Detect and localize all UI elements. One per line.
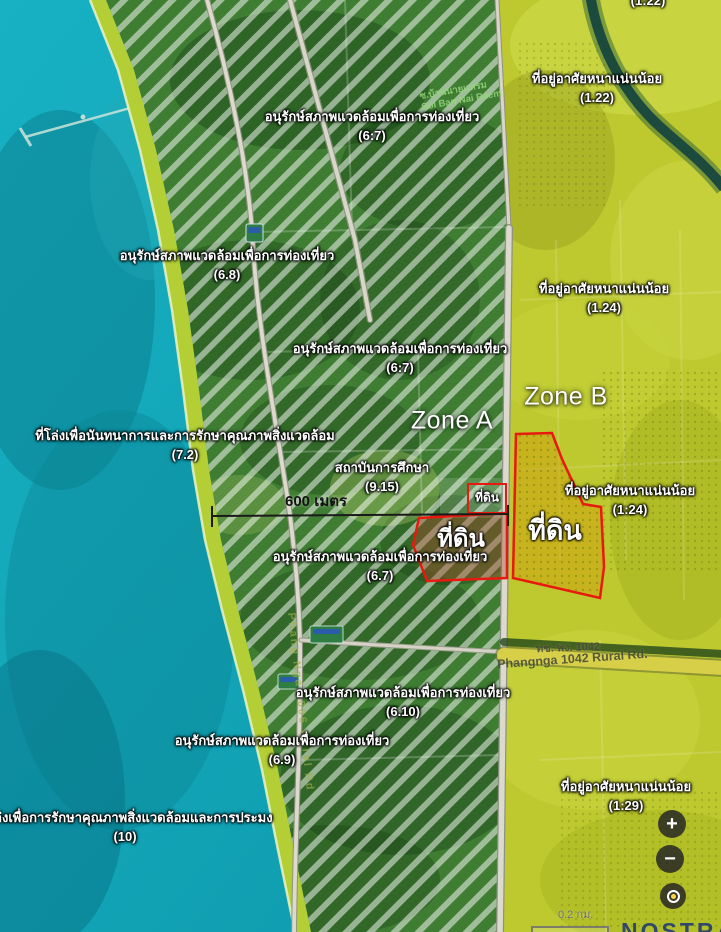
scale-text: 0.2 กม.	[558, 905, 593, 923]
zone-b-label: Zone B	[524, 383, 608, 412]
zoning-label: อนุรักษ์สภาพแวดล้อมเพื่อการท่องเที่ยว (6…	[293, 341, 508, 375]
plot-label-small: ที่ดิน	[475, 489, 499, 508]
zoom-in-button[interactable]: +	[658, 810, 686, 838]
zoning-label: ที่อยู่อาศัยหนาแน่นน้อย (1.24)	[539, 281, 669, 315]
zoning-label: ที่อยู่อาศัยหนาแน่นน้อย (1:24)	[565, 483, 695, 517]
locate-button[interactable]	[660, 883, 686, 909]
zoning-label: ที่อยู่อาศัยหนาแน่นน้อย (1.22)	[532, 71, 662, 105]
measurement-label: 600 เมตร	[285, 489, 347, 513]
zoning-label: อนุรักษ์สภาพแวดล้อมเพื่อการท่องเที่ยว (6…	[175, 733, 390, 767]
zoning-label: (1:22)	[631, 0, 666, 8]
zoning-label: ที่โล่งเพื่อนันทนาการและการรักษาคุณภาพสิ…	[35, 428, 335, 462]
zoning-label: ที่อยู่อาศัยหนาแน่นน้อย (1:29)	[561, 779, 691, 813]
zoning-label: อนุรักษ์สภาพแวดล้อมเพื่อการท่องเที่ยว (6…	[120, 248, 335, 282]
zoning-label: สถาบันการศึกษา (9.15)	[335, 460, 429, 494]
road-shield-icon	[310, 626, 343, 643]
brand-logo: NOSTRA	[621, 918, 721, 932]
zoning-label: ล่งเพื่อการรักษาคุณภาพสิ่งแวดล้อมและการป…	[0, 810, 256, 844]
zoning-label: อนุรักษ์สภาพแวดล้อมเพื่อการท่องเที่ยว (6…	[296, 685, 511, 719]
zoom-out-button[interactable]: −	[656, 845, 684, 873]
plot-label-zone-a: ที่ดิน	[437, 519, 485, 558]
zone-a-label: Zone A	[411, 407, 493, 436]
zoning-label: อนุรักษ์สภาพแวดล้อมเพื่อการท่องเที่ยว (6…	[265, 109, 480, 143]
map-viewport[interactable]: อนุรักษ์สภาพแวดล้อมเพื่อการท่องเที่ยว (6…	[0, 0, 721, 932]
road-shield-icon	[246, 224, 263, 242]
scale-bar	[531, 926, 609, 932]
plot-label-zone-b: ที่ดิน	[528, 509, 582, 552]
locate-icon	[667, 890, 680, 903]
